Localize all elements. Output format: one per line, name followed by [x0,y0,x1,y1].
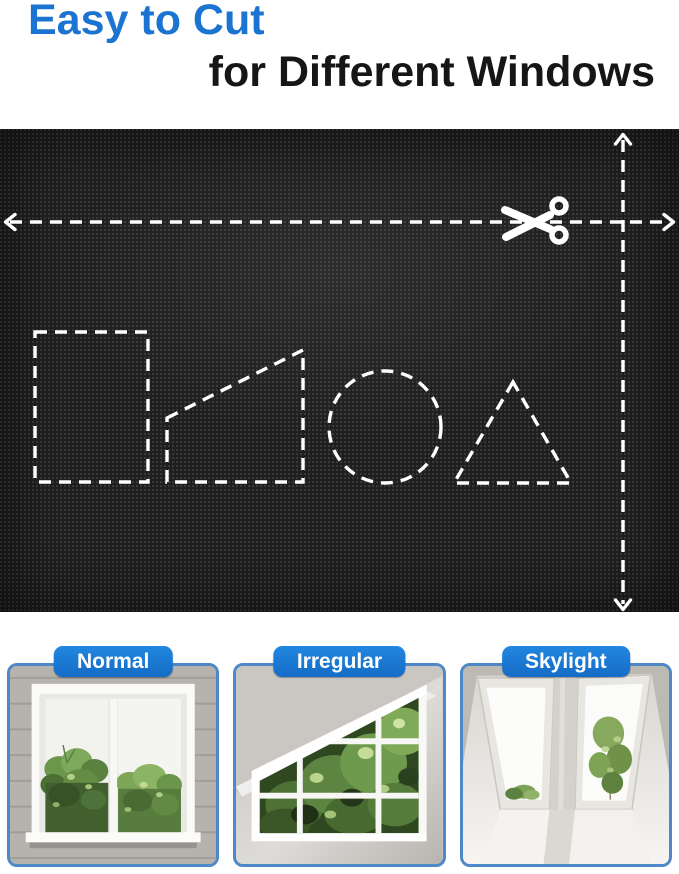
horizontal-cut-line [6,215,674,230]
cut-shape-triangle [454,382,571,483]
card-irregular: Irregular [233,646,445,867]
normal-window-illustration [10,666,216,864]
irregular-window-illustration [236,666,442,864]
skylight-window-photo [460,663,672,867]
normal-window-photo [7,663,219,867]
skylight-illustration [463,666,669,864]
normal-label-pill: Normal [54,646,172,677]
vertical-cut-line [616,135,631,610]
arrow-right-icon [664,215,674,230]
product-infographic: { "title": { "line1": "Easy to Cut", "li… [0,0,679,874]
cut-guides-overlay [0,129,679,612]
card-skylight: Skylight [460,646,672,867]
irregular-label-pill: Irregular [274,646,405,677]
fabric-panel [0,129,679,612]
window-cards-row: Normal [0,646,679,867]
card-normal: Normal [7,646,219,867]
cut-shape-trapezoid [167,350,303,482]
irregular-window-photo [233,663,445,867]
title-line2: for Different Windows [209,48,655,97]
cut-shape-circle [329,371,441,483]
cut-shape-rectangle [35,332,148,482]
skylight-label-pill: Skylight [502,646,630,677]
title-line1: Easy to Cut [28,0,265,45]
bush-right [116,764,182,832]
